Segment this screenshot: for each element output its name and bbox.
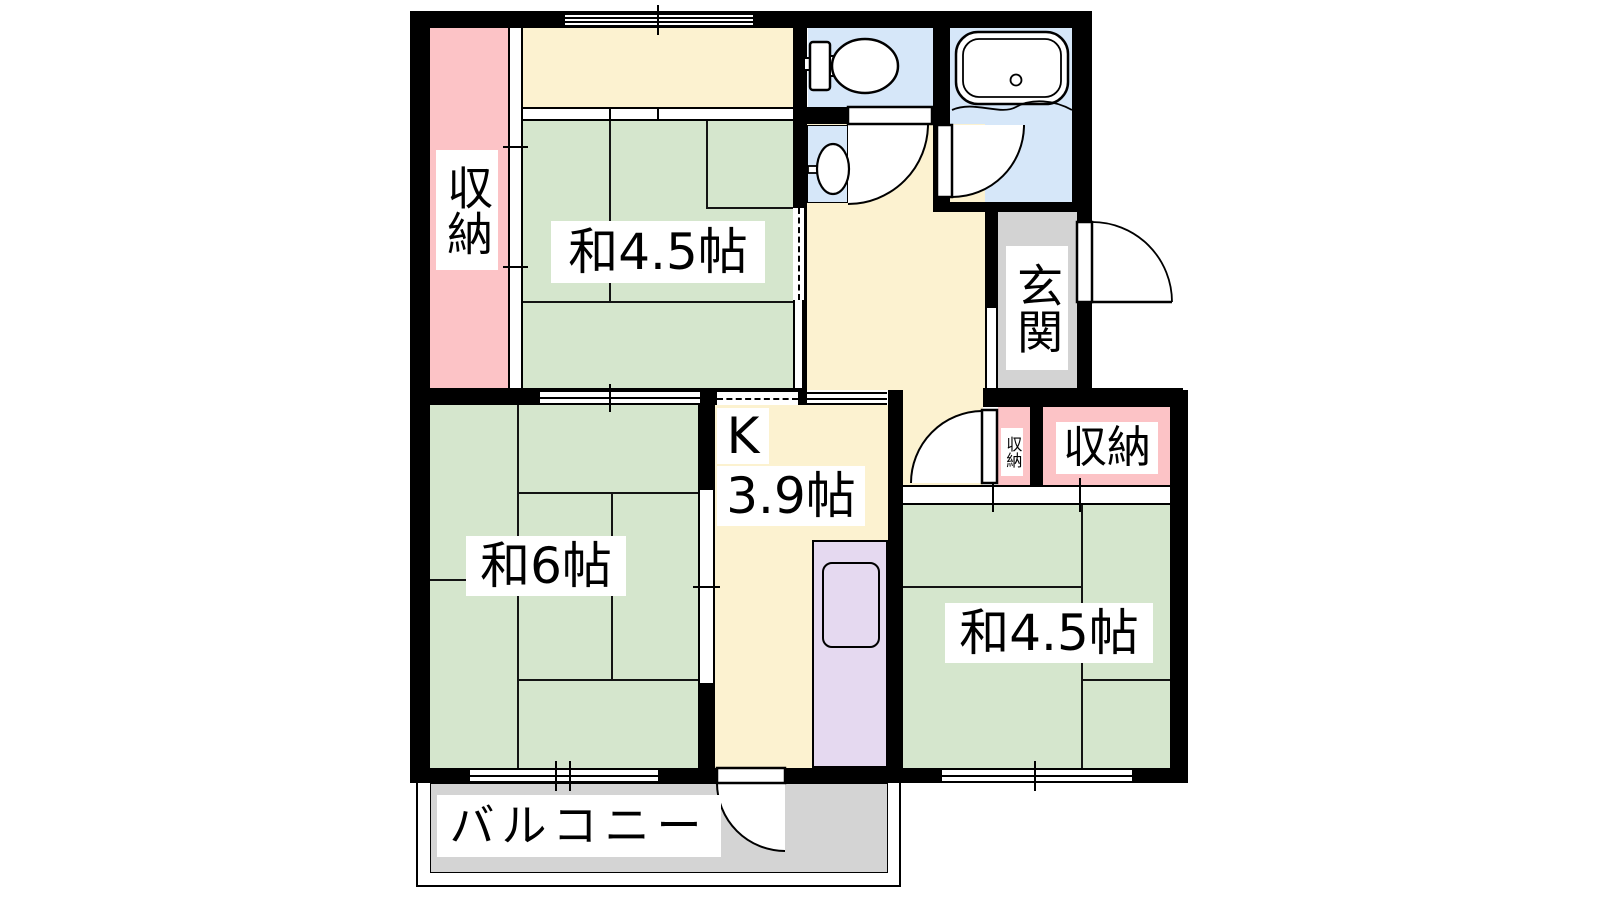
window-tick	[569, 761, 571, 791]
window	[807, 392, 887, 405]
wall	[983, 388, 1183, 407]
window-tick	[1034, 761, 1036, 791]
sliding-door	[793, 300, 804, 388]
closet-left-label: 収納	[436, 150, 498, 270]
door-divider	[609, 108, 611, 120]
kitchen-counter	[812, 540, 888, 768]
tatami-line	[523, 301, 793, 303]
tatami-line	[517, 679, 698, 681]
window	[565, 13, 753, 27]
window	[942, 768, 1132, 783]
tatami-line	[1081, 679, 1170, 681]
open-boundary	[717, 392, 798, 405]
closet-small-label: 収納	[1001, 428, 1023, 476]
washbasin-icon	[808, 140, 850, 198]
kitchen-sink	[822, 562, 880, 648]
door-tick	[1079, 478, 1081, 512]
wall	[1072, 28, 1092, 212]
entrance-label: 玄関	[1006, 246, 1068, 370]
entrance-opening	[985, 308, 998, 388]
balcony-door	[715, 766, 789, 856]
kitchen-size-label: 3.9帖	[717, 466, 865, 526]
closet-right-label: 収納	[1056, 422, 1158, 474]
balcony-label: バルコニー	[437, 795, 721, 857]
floor-plan: 収納 和4.5帖 和6帖 K 3.9帖 和4.5帖 玄関 収納 収納 バルコニー	[0, 0, 1600, 900]
window-tick	[555, 761, 557, 791]
door-tick	[693, 586, 720, 588]
room-b-label: 和6帖	[466, 536, 626, 596]
window-tick	[657, 5, 659, 35]
top-strip-area	[523, 28, 793, 107]
front-door	[1077, 220, 1177, 308]
wall	[950, 202, 1092, 212]
vestibule-door	[911, 408, 999, 486]
wall	[985, 212, 998, 308]
wall	[1030, 407, 1043, 485]
wall	[888, 390, 903, 768]
tatami-line	[706, 207, 793, 209]
toilet-door	[846, 105, 934, 207]
open-boundary	[793, 208, 804, 300]
door-divider	[657, 108, 659, 120]
kitchen-letter-label: K	[717, 408, 769, 464]
bathtub-icon	[952, 28, 1072, 116]
room-a-label: 和4.5帖	[551, 221, 765, 283]
tatami-line	[517, 492, 698, 494]
door-tick	[609, 384, 611, 412]
wall	[1170, 390, 1188, 783]
tatami-line	[903, 586, 1083, 588]
room-c-label: 和4.5帖	[945, 603, 1153, 663]
toilet-icon	[804, 36, 904, 98]
sliding-doors	[903, 485, 1170, 505]
door-tick	[503, 146, 528, 148]
wall	[1077, 300, 1092, 390]
tatami-line	[706, 121, 708, 209]
window	[470, 768, 658, 783]
closet-sliding-doors	[508, 28, 523, 388]
door-tick	[503, 266, 528, 268]
sliding-doors	[540, 390, 700, 405]
bath-door	[935, 123, 1027, 201]
